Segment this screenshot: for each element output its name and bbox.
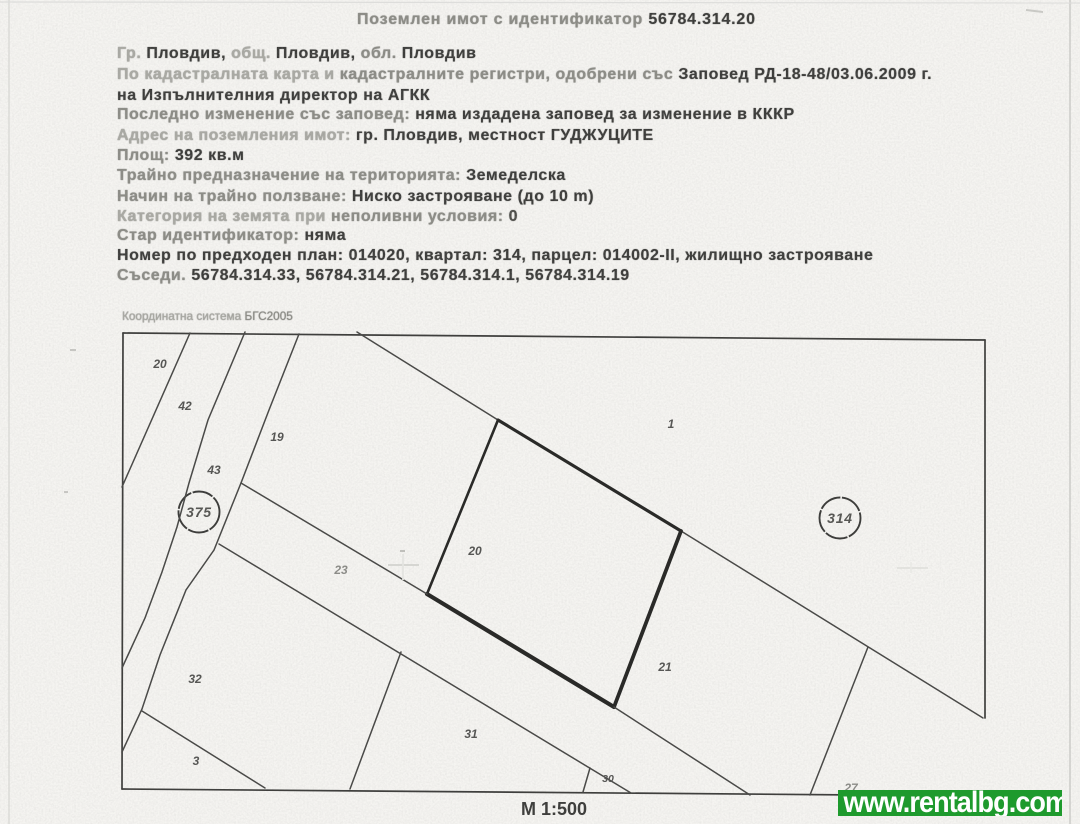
svg-text:21: 21: [657, 660, 672, 674]
svg-text:43: 43: [206, 463, 221, 477]
svg-text:31: 31: [464, 727, 478, 741]
svg-text:20: 20: [467, 544, 482, 558]
svg-text:30: 30: [602, 773, 614, 785]
svg-text:1: 1: [668, 417, 675, 431]
svg-text:32: 32: [188, 672, 202, 686]
svg-text:375: 375: [186, 504, 212, 520]
svg-text:42: 42: [177, 399, 192, 413]
svg-text:20: 20: [152, 357, 167, 371]
svg-text:314: 314: [827, 510, 853, 526]
svg-text:М 1:500: М 1:500: [521, 799, 587, 819]
svg-text:19: 19: [270, 430, 284, 444]
svg-text:23: 23: [333, 563, 348, 577]
svg-text:3: 3: [193, 754, 200, 768]
